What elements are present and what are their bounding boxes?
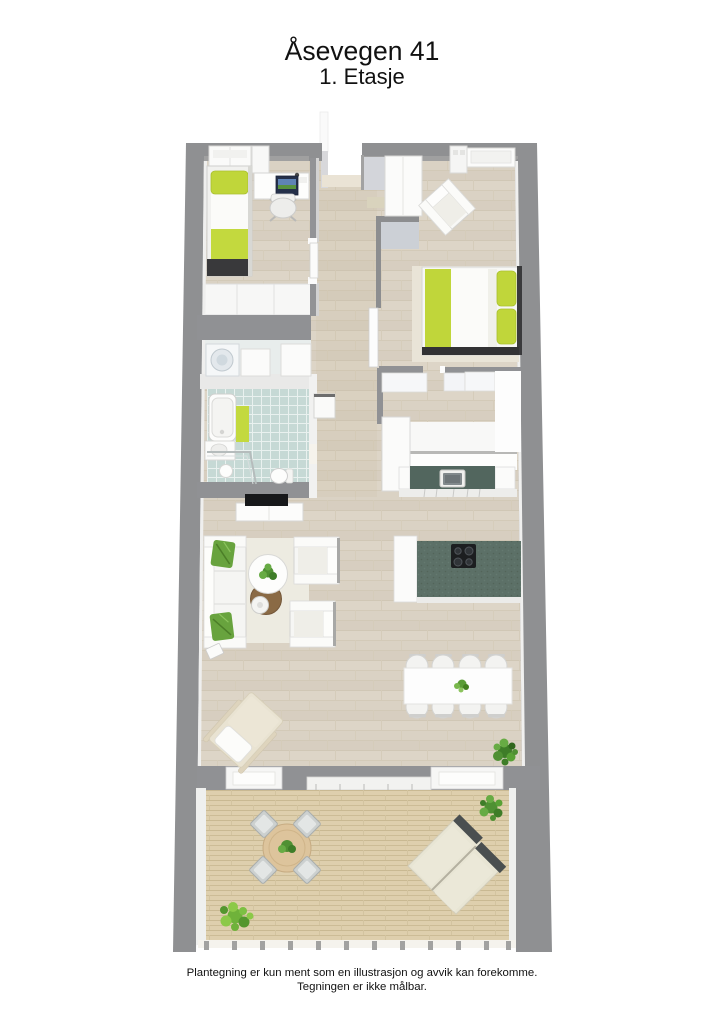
svg-text:Tegningen er ikke målbar.: Tegningen er ikke målbar. bbox=[297, 981, 427, 993]
svg-text:1. Etasje: 1. Etasje bbox=[319, 64, 405, 89]
svg-text:Åsevegen 41: Åsevegen 41 bbox=[285, 36, 440, 66]
svg-text:Plantegning er kun ment som en: Plantegning er kun ment som en illustras… bbox=[187, 967, 538, 979]
